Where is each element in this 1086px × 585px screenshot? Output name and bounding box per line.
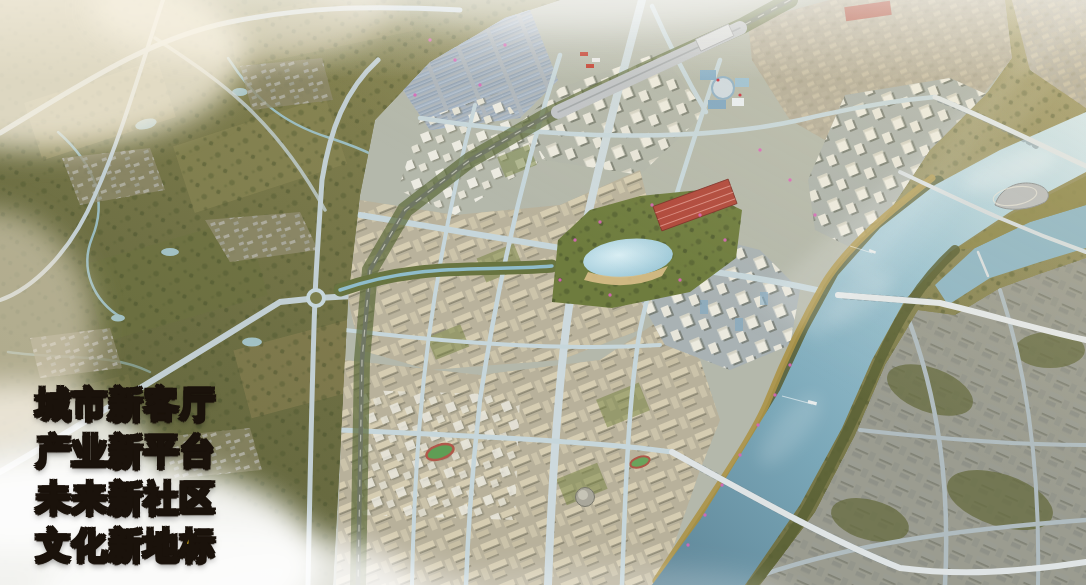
aerial-rendering: 城市新客厅 产业新平台 未来新社区 文化新地标 [0,0,1086,585]
slogan-line-1: 城市新客厅 [36,382,216,429]
slogan-line-4: 文化新地标 [36,523,216,570]
slogan-line-3: 未来新社区 [36,476,216,523]
slogan-overlay: 城市新客厅 产业新平台 未来新社区 文化新地标 [36,382,216,570]
slogan-line-2: 产业新平台 [36,429,216,476]
